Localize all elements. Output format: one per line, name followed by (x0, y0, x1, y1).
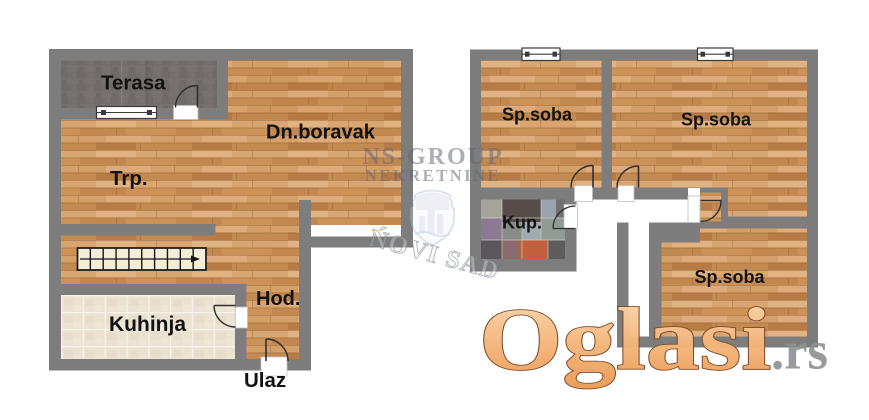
svg-text:Terasa: Terasa (101, 72, 166, 95)
svg-text:.rs: .rs (771, 321, 828, 381)
svg-text:Dn.boravak: Dn.boravak (266, 122, 376, 144)
svg-text:Kup.: Kup. (502, 213, 542, 233)
svg-text:Kuhinja: Kuhinja (109, 313, 186, 336)
svg-text:Oglasi: Oglasi (479, 291, 771, 389)
svg-text:Hod.: Hod. (256, 288, 300, 310)
svg-text:Sp.soba: Sp.soba (681, 110, 752, 130)
svg-text:Sp.soba: Sp.soba (502, 105, 573, 125)
svg-text:NEKRETNINE: NEKRETNINE (365, 166, 501, 185)
svg-text:Sp.soba: Sp.soba (695, 267, 766, 287)
svg-text:Trp.: Trp. (110, 167, 148, 190)
svg-text:Ulaz: Ulaz (244, 369, 286, 392)
